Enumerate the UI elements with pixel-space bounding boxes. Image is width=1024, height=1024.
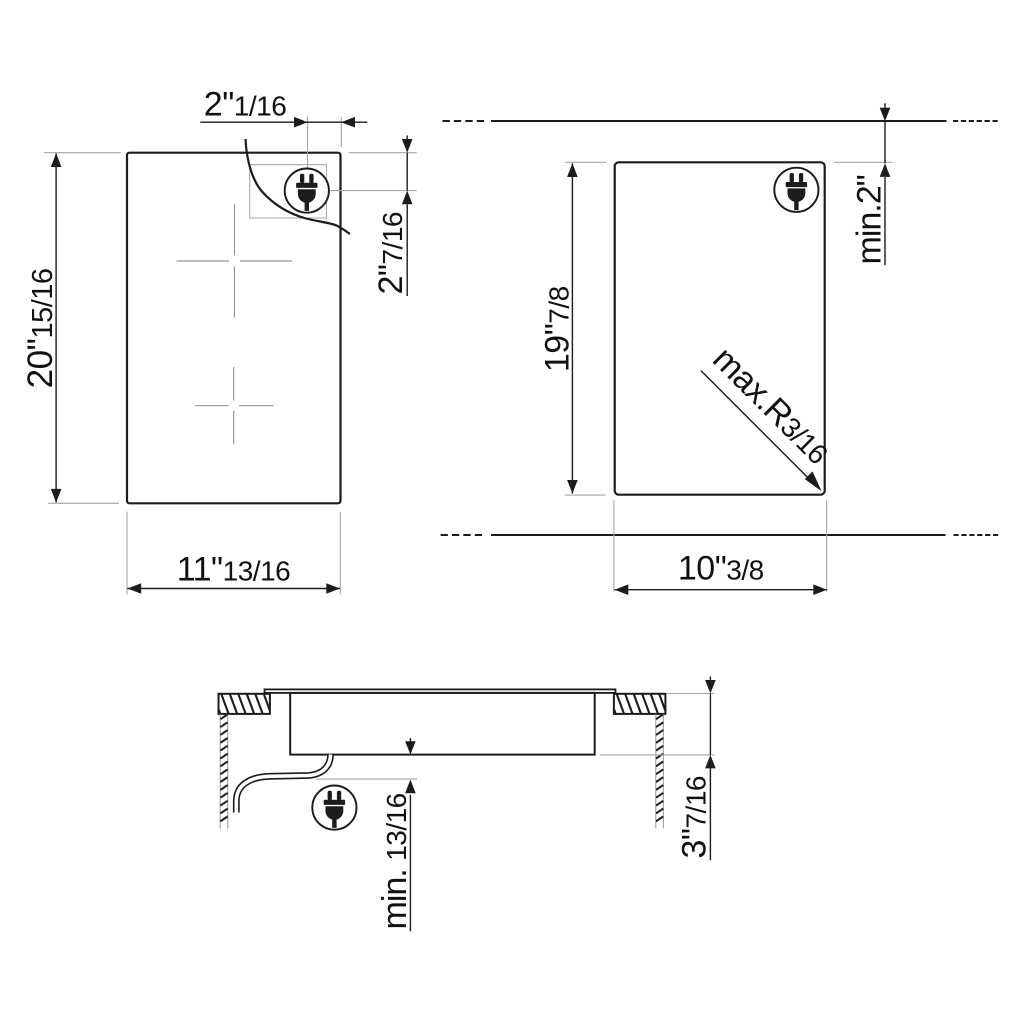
svg-text:10"3/8: 10"3/8 [678,550,764,588]
svg-text:3"7/16: 3"7/16 [676,776,714,858]
svg-text:19"7/8: 19"7/8 [539,286,577,372]
svg-text:min. 13/16: min. 13/16 [376,793,414,929]
svg-text:11"13/16: 11"13/16 [177,551,290,589]
svg-text:min.2": min.2" [851,175,889,264]
svg-text:2"7/16: 2"7/16 [372,212,410,294]
svg-text:2"1/16: 2"1/16 [204,85,286,123]
svg-text:max.R3/16: max.R3/16 [705,340,837,472]
svg-text:20"15/16: 20"15/16 [21,268,60,388]
